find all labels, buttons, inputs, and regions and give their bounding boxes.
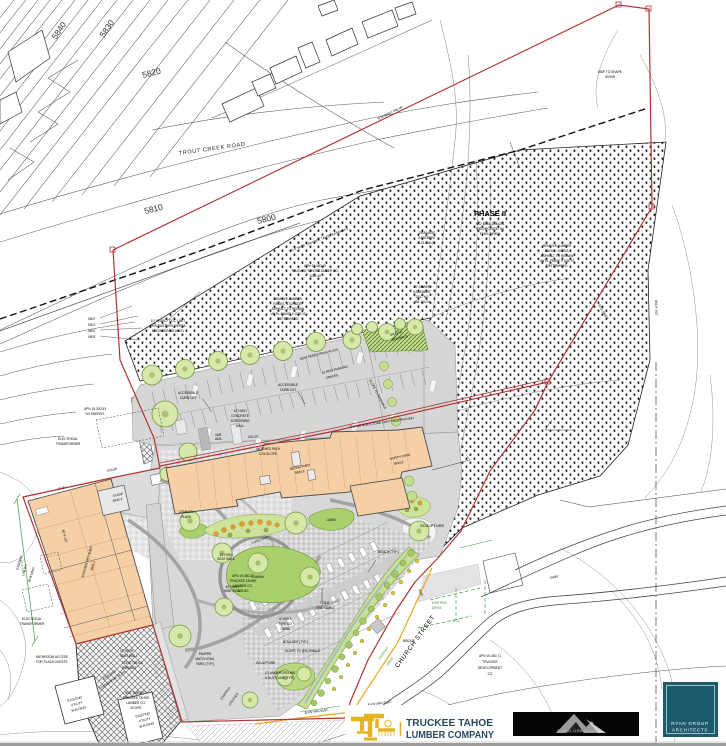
svg-text:INCLINED PATH: INCLINED PATH [256,447,280,451]
svg-text:1.52 AC: 1.52 AC [237,589,249,593]
svg-text:ELECTRICAL: ELECTRICAL [58,437,78,441]
svg-text:EASEMENT: EASEMENT [413,290,431,294]
svg-text:ACCESSIBLE: ACCESSIBLE [178,391,198,395]
svg-text:302.04': 302.04' [248,434,259,439]
svg-text:APN 19-450-45: APN 19-450-45 [304,264,326,268]
svg-text:MAP TO SHAPE: MAP TO SHAPE [598,70,622,74]
svg-text:APN 19-320-53: APN 19-320-53 [84,407,106,411]
svg-text:(7) UNDERGROUND: (7) UNDERGROUND [265,671,296,675]
svg-text:10' HIGH: 10' HIGH [233,409,247,413]
svg-text:BATHROOM ACCESS: BATHROOM ACCESS [36,655,68,659]
svg-text:TRUCKEE TAHOE: TRUCKEE TAHOE [123,696,150,700]
svg-text:DRIVE: DRIVE [432,606,442,610]
svg-text:CURB CUT: CURB CUT [180,396,197,400]
svg-text:EASEMENT: EASEMENT [418,236,436,240]
svg-text:LUMBER CO.: LUMBER CO. [233,584,253,588]
svg-text:6' HIGH: 6' HIGH [279,617,291,621]
svg-text:SLOPE TO (ED) SWALE: SLOPE TO (ED) SWALE [285,649,320,653]
svg-text:REMOVE LUMBER: REMOVE LUMBER [543,244,572,248]
svg-text:5804': 5804' [88,323,96,327]
svg-text:MATCH RAIL: MATCH RAIL [195,657,214,661]
svg-text:LAWN: LAWN [326,518,336,522]
svg-text:ADA: ADA [215,437,222,441]
svg-text:APN 19-450-71: APN 19-450-71 [479,654,501,658]
svg-text:ELECTRICAL: ELECTRICAL [22,617,42,621]
svg-text:DEVELOPMENT: DEVELOPMENT [478,666,502,670]
svg-text:PHASE II: PHASE II [474,209,506,218]
svg-text:UTILITY LINE (TYP.): UTILITY LINE (TYP.) [265,676,294,680]
svg-text:SCREENING: SCREENING [231,419,250,423]
svg-text:UNTIL PHASE II USE IS: UNTIL PHASE II USE IS [271,312,306,316]
svg-text:1210.40: 1210.40 [309,274,321,278]
svg-text:17' HIGH: 17' HIGH [120,649,134,653]
svg-text:FOOD TRUCK: FOOD TRUCK [122,661,144,665]
svg-text:CONCRETE: CONCRETE [231,414,249,418]
svg-text:ENGINEERING 8/2/21: ENGINEERING 8/2/21 [152,329,184,333]
svg-text:SCULPTURE: SCULPTURE [256,661,275,665]
svg-text:24'-0': 24'-0' [452,619,460,623]
svg-text:HV ENERGY: HV ENERGY [86,412,106,416]
svg-text:TRUCKEE TAHOE: TRUCKEE TAHOE [406,717,493,729]
svg-text:DOC NO: DOC NO [416,295,429,299]
svg-text:REMOVE LUMBER: REMOVE LUMBER [274,297,303,301]
svg-text:PAVERS: PAVERS [199,652,211,656]
svg-text:ASPHALT TO REMAIN: ASPHALT TO REMAIN [272,307,305,311]
svg-text:20' SEWER: 20' SEWER [414,285,431,289]
svg-text:5808': 5808' [88,335,96,339]
svg-text:TRANSFORMER: TRANSFORMER [56,442,81,446]
svg-text:TRUCKEE TAHOE: TRUCKEE TAHOE [230,579,257,583]
svg-text:PER EASTERN SIERRA: PER EASTERN SIERRA [150,324,186,328]
svg-text:DETERMINED: DETERMINED [277,317,299,321]
svg-text:BENCH (TYP.): BENCH (TYP.) [378,550,399,554]
svg-text:123-456-08: 123-456-08 [419,241,436,245]
svg-text:TYPE ED: TYPE ED [278,622,292,626]
svg-text:NOT SUBJECT: NOT SUBJECT [125,691,147,695]
svg-text:BNDY 160': BNDY 160' [654,300,659,316]
svg-text:EXISTING: EXISTING [432,601,447,605]
svg-text:LIGHT: LIGHT [320,601,329,605]
svg-text:12% SLOPE: 12% SLOPE [259,452,277,456]
svg-text:TRANSFORMER: TRANSFORMER [20,622,45,626]
svg-text:CO: CO [488,672,493,676]
svg-text:TRUCKEE: TRUCKEE [482,660,497,664]
svg-text:RACKS, SHEDS,: RACKS, SHEDS, [545,249,570,253]
svg-text:SEAT WALL: SEAT WALL [217,557,235,561]
svg-text:SIGNS: SIGNS [605,75,615,79]
svg-text:COMMON: COMMON [179,510,195,514]
svg-text:PLAZA: PLAZA [181,515,192,519]
svg-text:456-123-04: 456-123-04 [414,300,431,304]
svg-text:SCULPTURE: SCULPTURE [420,523,445,528]
svg-text:DETERMINED: DETERMINED [546,264,568,268]
svg-text:10' YEARLY DOC LIMIT: 10' YEARLY DOC LIMIT [151,319,185,323]
svg-text:5802': 5802' [88,317,96,321]
svg-text:THIS AREA: THIS AREA [480,231,501,236]
svg-text:CURB CUT: CURB CUT [280,388,297,392]
svg-text:ASPHALT TO REMAIN: ASPHALT TO REMAIN [541,254,574,258]
svg-text:SEAT WALL: SEAT WALL [120,654,138,658]
svg-text:ARCHITECTS: ARCHITECTS [672,728,708,733]
svg-text:SCOPE: SCOPE [130,706,141,710]
svg-text:5806': 5806' [88,329,96,333]
svg-text:RYAN GROUP: RYAN GROUP [671,721,708,726]
svg-text:STANDARD: STANDARD [316,606,334,610]
svg-text:LUMBER CO.: LUMBER CO. [126,701,146,705]
svg-text:WALL: WALL [236,424,245,428]
svg-text:LUMBER COMPANY: LUMBER COMPANY [406,729,494,741]
svg-text:RACKS, STORAGE,: RACKS, STORAGE, [273,302,302,306]
svg-text:TRUCKEE TAHOE LUMBER CO.: TRUCKEE TAHOE LUMBER CO. [291,269,339,273]
svg-text:UNTIL PHASE II USE IS: UNTIL PHASE II USE IS [540,259,575,263]
svg-text:PARKING: PARKING [122,666,137,670]
svg-text:DRAINAGE: DRAINAGE [419,231,436,235]
svg-text:BOULDER (TYP.): BOULDER (TYP.) [283,640,308,644]
svg-text:APN 19-450-38: APN 19-450-38 [232,574,254,578]
svg-text:CURB: CURB [280,627,289,631]
svg-text:YARD (TYP.): YARD (TYP.) [196,662,214,666]
svg-text:ACCESSIBLE: ACCESSIBLE [278,383,298,387]
svg-text:FOR PLAZA GUESTS: FOR PLAZA GUESTS [36,660,68,664]
svg-text:E AND URBAN D: E AND URBAN D [557,728,595,733]
